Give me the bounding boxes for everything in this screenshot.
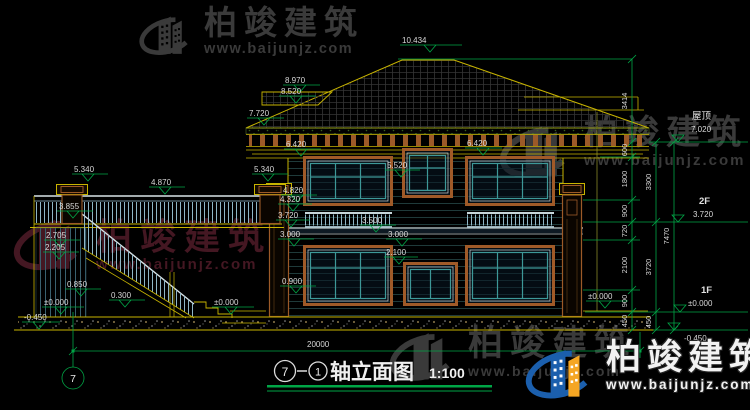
elev-0300: 0.300 xyxy=(111,291,132,300)
floor2-label: 2F xyxy=(699,196,710,207)
ground-hatch xyxy=(18,318,650,330)
dim-3720: 3720 xyxy=(644,259,653,276)
title-name: 轴立面图 xyxy=(330,360,414,384)
title-axis-a: 7 xyxy=(282,365,289,379)
window-2f-right xyxy=(467,158,554,205)
dim-900b: 900 xyxy=(620,295,629,308)
dim-7470: 7470 xyxy=(662,228,671,245)
elev-5340-right: 5.340 xyxy=(254,165,275,174)
title-block: 7 1 轴立面图 1:100 xyxy=(267,360,492,392)
right-annotations: 屋顶 7.020 2F 3.720 1F ±0.000 -0.450 xyxy=(684,111,714,343)
elev-2705: 2.705 xyxy=(46,231,67,240)
dim-450a: 450 xyxy=(620,315,629,328)
roof-label: 屋顶 xyxy=(692,111,712,122)
elev-4320: 4.320 xyxy=(280,195,301,204)
elev-2100: 2.100 xyxy=(386,248,407,257)
title-underline-thick xyxy=(267,385,492,388)
elev-3000-center: 3.000 xyxy=(388,230,409,239)
axis-bubble-label: 7 xyxy=(70,373,76,385)
elev-7720: 7.720 xyxy=(249,109,270,118)
elev-3000-left: 3.000 xyxy=(280,230,301,239)
elev-ridge: 10.434 xyxy=(402,36,427,45)
elev-0900: 0.900 xyxy=(282,277,303,286)
window-2f-center xyxy=(404,150,452,197)
elev-2205: 2.205 xyxy=(45,243,66,252)
floor2-elev: 3.720 xyxy=(693,210,714,219)
window-2f-left xyxy=(305,158,392,205)
rafter-tails xyxy=(249,135,646,146)
title-axis-b: 1 xyxy=(315,367,321,379)
dim-450b: 450 xyxy=(644,316,653,329)
elev-zero-right: ±0.000 xyxy=(588,292,613,301)
roof-elev: 7.020 xyxy=(691,125,712,134)
dim-3300: 3300 xyxy=(644,174,653,191)
dim-3414: 3414 xyxy=(620,93,629,110)
window-1f-left xyxy=(305,247,392,305)
dim-1800: 1800 xyxy=(620,171,629,188)
elev-zero-left: ±0.000 xyxy=(44,298,69,307)
eave-top-band xyxy=(246,128,649,134)
elev-3855: 3.855 xyxy=(59,202,80,211)
base-elev: -0.450 xyxy=(684,334,707,343)
elev-zero-porch: ±0.000 xyxy=(214,298,239,307)
elevation-drawing: 7 xyxy=(0,0,750,410)
porch-post-right xyxy=(560,184,585,317)
title-underline-thin xyxy=(267,391,492,392)
window-1f-right xyxy=(467,247,554,305)
dim-2100: 2100 xyxy=(620,257,629,274)
elev-3720: 3.720 xyxy=(278,211,299,220)
floor1-label: 1F xyxy=(701,285,712,296)
elev-0850: 0.850 xyxy=(67,280,88,289)
elev-4870: 4.870 xyxy=(151,178,172,187)
elev-8520: 8.520 xyxy=(281,87,302,96)
elev-6420-left: 6.420 xyxy=(286,140,307,149)
elev-6420-right: 6.420 xyxy=(467,139,488,148)
elev-5520: 5.520 xyxy=(387,161,408,170)
dim-720: 720 xyxy=(620,225,629,238)
dim-600: 600 xyxy=(620,144,629,157)
cad-elevation-screenshot: 柏竣建筑 www.baijunjz.com 柏竣建筑 www.baijunjz.… xyxy=(0,0,750,410)
elev-8970: 8.970 xyxy=(285,76,306,85)
title-scale: 1:100 xyxy=(429,365,465,381)
deck-edge xyxy=(30,224,284,228)
elev-5340-left: 5.340 xyxy=(74,165,95,174)
floor1-elev: ±0.000 xyxy=(688,299,713,308)
dim-900a: 900 xyxy=(620,205,629,218)
elev-4820: 4.820 xyxy=(283,186,304,195)
elev-neg450-left: -0.450 xyxy=(24,313,47,322)
dim-total-20000: 20000 xyxy=(307,340,330,349)
elev-3500: 3.500 xyxy=(362,216,383,225)
window-1f-center xyxy=(405,264,457,305)
